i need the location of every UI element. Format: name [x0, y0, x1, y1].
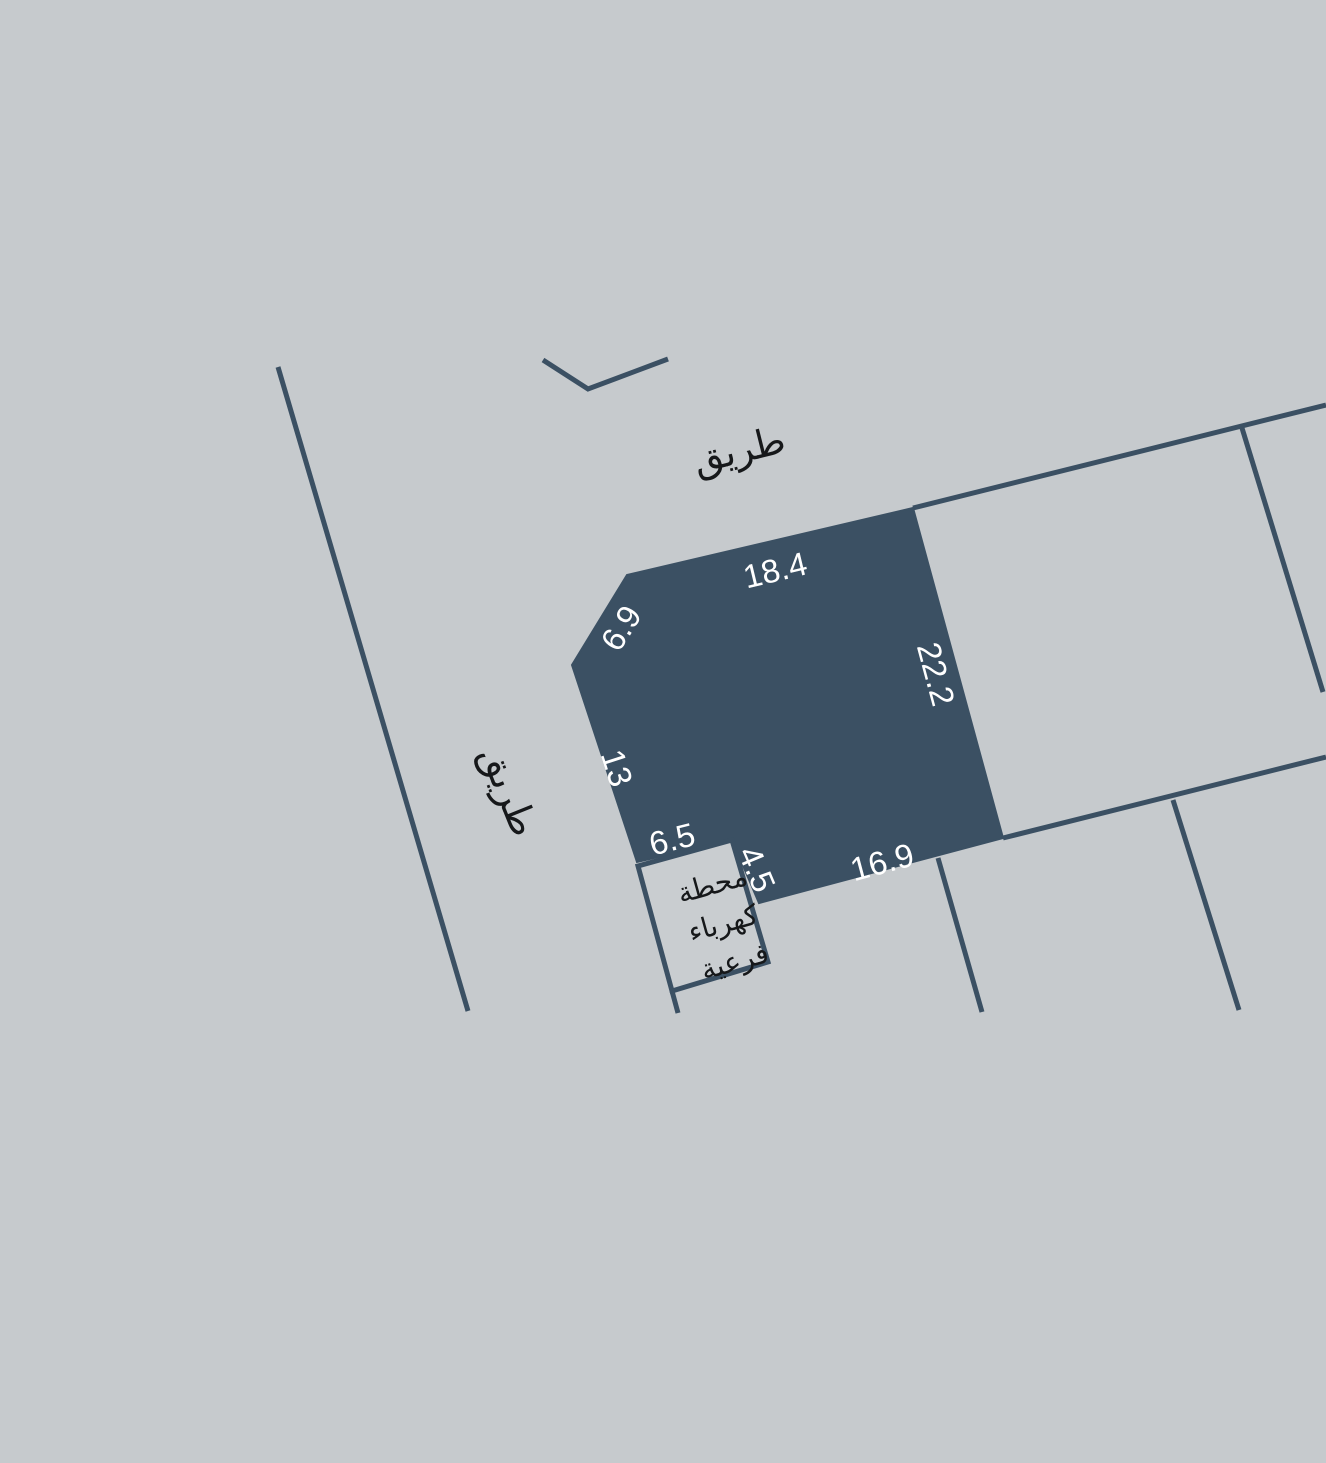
map-canvas: 18.4 6.9 22.2 13 6.5 4.5 16.9 طريق طريق …: [0, 0, 1326, 1463]
cadastral-map: 18.4 6.9 22.2 13 6.5 4.5 16.9 طريق طريق …: [0, 0, 1326, 1463]
